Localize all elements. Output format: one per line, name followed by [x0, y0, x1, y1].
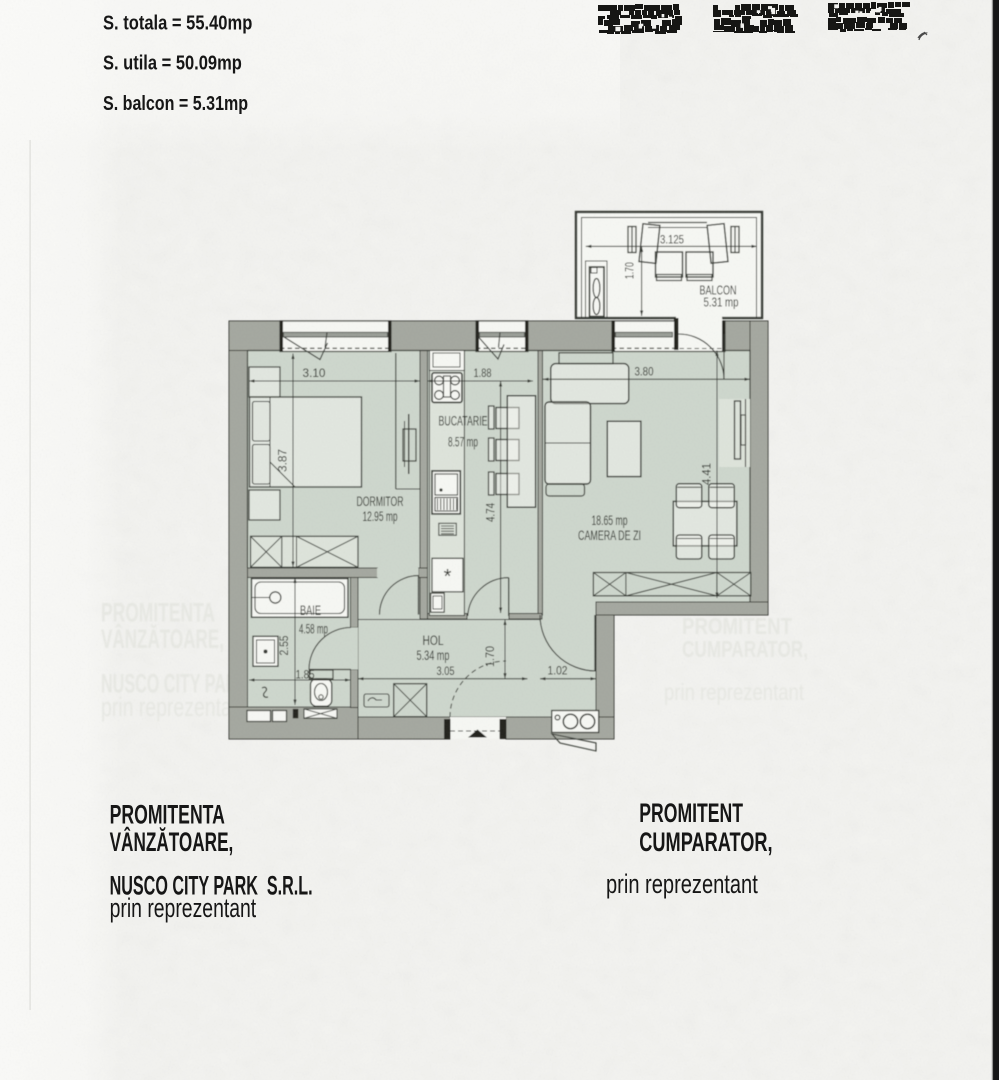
svg-text:PROMITENT: PROMITENT: [639, 798, 743, 828]
svg-text:PROMITENTA: PROMITENTA: [110, 800, 225, 830]
svg-text:S. totala = 55.40mp: S. totala = 55.40mp: [103, 12, 252, 35]
svg-text:S. balcon = 5.31mp: S. balcon = 5.31mp: [103, 92, 248, 115]
svg-text:prin reprezentant: prin reprezentant: [606, 869, 758, 899]
svg-text:CUMPARATOR,: CUMPARATOR,: [639, 827, 772, 857]
svg-text:S. utila = 50.09mp: S. utila = 50.09mp: [103, 52, 242, 75]
svg-text:VÂNZĂTOARE,: VÂNZĂTOARE,: [110, 827, 234, 857]
svg-text:prin reprezentant: prin reprezentant: [110, 893, 257, 923]
